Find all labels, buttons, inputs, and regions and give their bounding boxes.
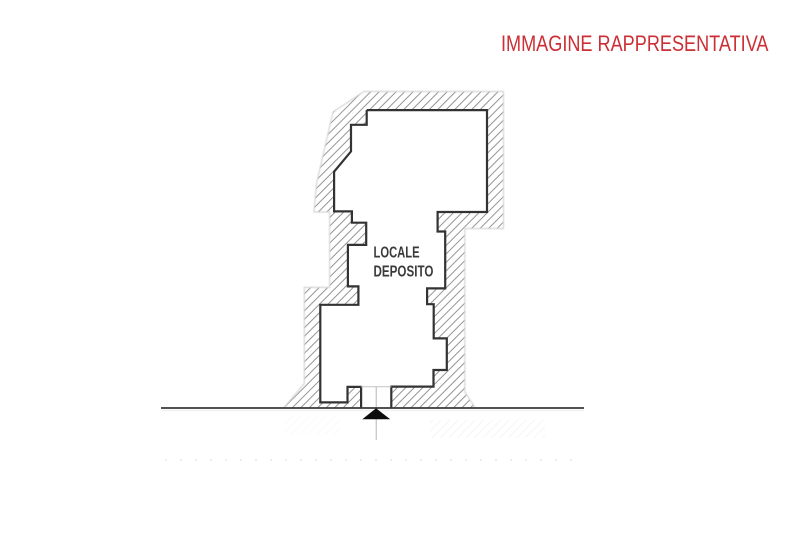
- svg-text:IMMAGINE RAPPRESENTATIVA: IMMAGINE RAPPRESENTATIVA: [501, 31, 769, 56]
- svg-text:LOCALE: LOCALE: [374, 244, 420, 261]
- svg-text:DEPOSITO: DEPOSITO: [374, 263, 434, 280]
